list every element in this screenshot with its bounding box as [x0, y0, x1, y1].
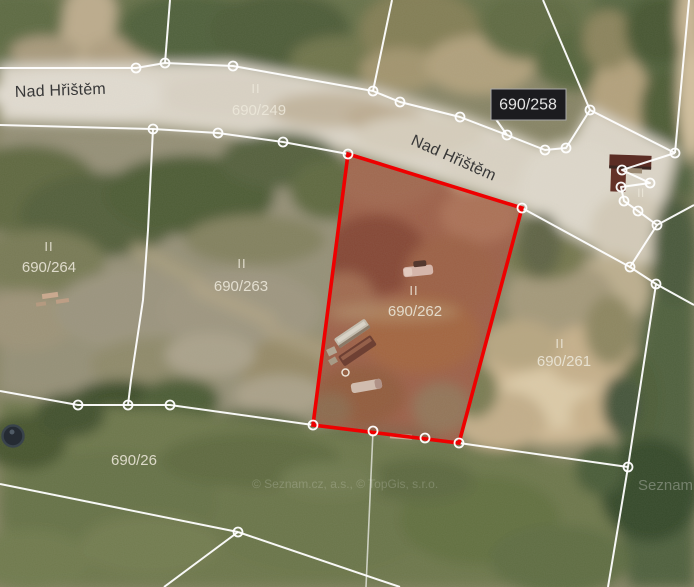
svg-text:II: II: [237, 256, 246, 271]
svg-text:690/261: 690/261: [537, 353, 591, 370]
svg-text:Seznam: Seznam: [638, 477, 693, 494]
svg-text:690/262: 690/262: [388, 303, 442, 320]
svg-text:690/264: 690/264: [22, 259, 76, 276]
svg-text:II: II: [251, 81, 260, 96]
svg-text:II: II: [637, 188, 644, 200]
svg-text:© Seznam.cz, a.s., © TopGis, s: © Seznam.cz, a.s., © TopGis, s.r.o.: [252, 477, 438, 491]
svg-text:690/258: 690/258: [499, 97, 557, 114]
svg-text:690/263: 690/263: [214, 278, 268, 295]
svg-text:690/249: 690/249: [232, 102, 286, 119]
svg-text:II: II: [555, 336, 564, 351]
svg-text:690/26: 690/26: [111, 452, 157, 469]
svg-text:II: II: [44, 239, 53, 254]
svg-text:II: II: [409, 283, 418, 298]
svg-text:Nad Hřištěm: Nad Hřištěm: [15, 81, 107, 101]
